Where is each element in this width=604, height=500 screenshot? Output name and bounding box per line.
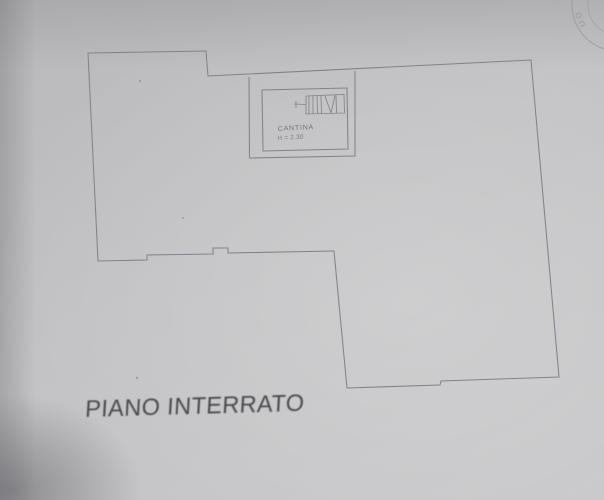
scanned-floorplan-page: CANTINA H = 2.30 UO PIANO INTERRA bbox=[0, 0, 604, 500]
cantina-inner-wall bbox=[262, 88, 348, 151]
building-outline bbox=[88, 51, 559, 388]
dust-specks bbox=[136, 80, 184, 379]
window-hatch-symbol bbox=[294, 95, 345, 115]
floor-plan-drawing: CANTINA H = 2.30 UO bbox=[0, 0, 604, 500]
room-height-label: H = 2.30 bbox=[277, 134, 304, 142]
cantina-room: CANTINA H = 2.30 bbox=[249, 71, 355, 158]
stamp-inner-ring bbox=[588, 0, 604, 35]
stamp-text: UO bbox=[573, 9, 587, 29]
room-label: CANTINA bbox=[278, 124, 315, 133]
round-stamp: UO bbox=[572, 0, 604, 51]
cantina-outer-wall bbox=[249, 71, 355, 158]
